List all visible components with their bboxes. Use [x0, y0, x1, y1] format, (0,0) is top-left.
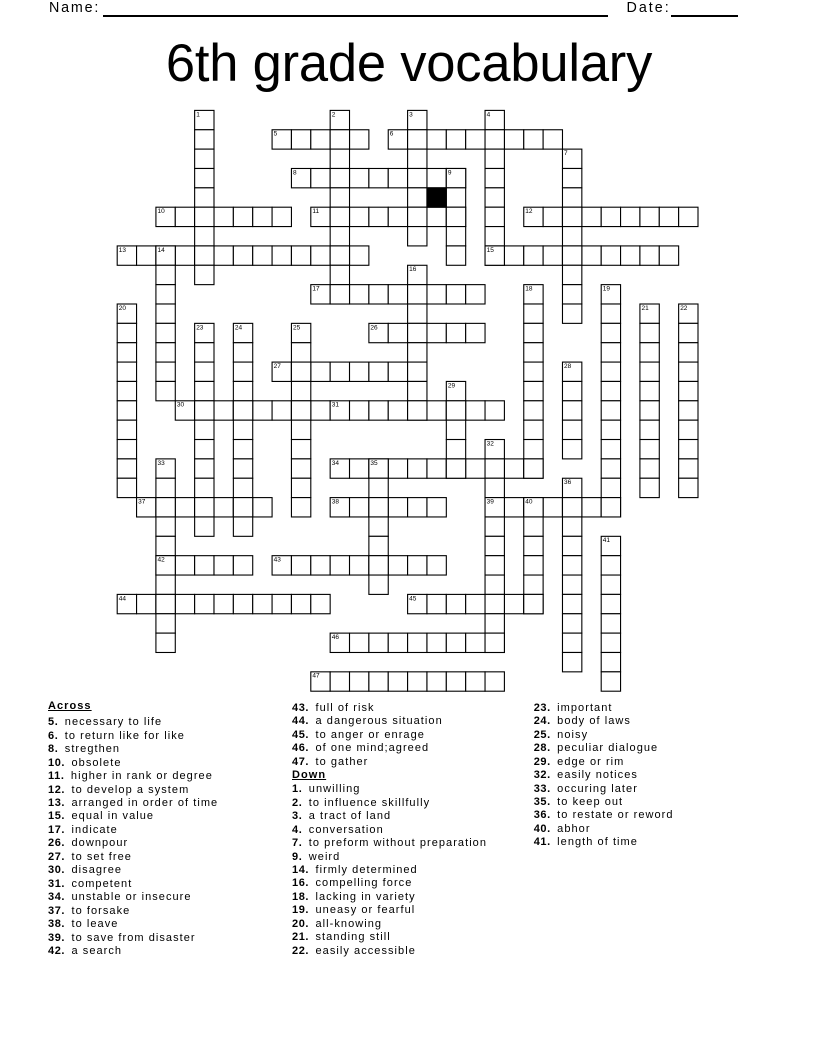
svg-text:45: 45	[409, 595, 417, 602]
svg-text:9: 9	[448, 169, 452, 176]
svg-text:1: 1	[196, 111, 200, 118]
svg-text:39: 39	[487, 499, 495, 506]
svg-text:41: 41	[603, 537, 611, 544]
svg-text:25: 25	[293, 324, 301, 331]
svg-text:7: 7	[564, 150, 568, 157]
svg-text:44: 44	[119, 595, 127, 602]
svg-text:38: 38	[332, 499, 340, 506]
svg-text:23: 23	[196, 324, 204, 331]
svg-text:34: 34	[332, 460, 340, 467]
svg-text:5: 5	[274, 131, 278, 138]
svg-text:10: 10	[157, 208, 165, 215]
svg-text:17: 17	[312, 286, 320, 293]
svg-text:42: 42	[157, 557, 165, 564]
svg-text:2: 2	[332, 111, 336, 118]
svg-text:35: 35	[370, 460, 378, 467]
svg-text:19: 19	[603, 286, 611, 293]
svg-text:14: 14	[157, 247, 165, 254]
svg-text:33: 33	[157, 460, 165, 467]
svg-text:21: 21	[641, 305, 649, 312]
svg-text:4: 4	[487, 111, 491, 118]
svg-text:43: 43	[274, 557, 282, 564]
svg-text:12: 12	[525, 208, 533, 215]
svg-text:8: 8	[293, 169, 297, 176]
svg-text:32: 32	[487, 440, 495, 447]
svg-text:3: 3	[409, 111, 413, 118]
svg-text:31: 31	[332, 402, 340, 409]
svg-text:40: 40	[525, 499, 533, 506]
svg-text:22: 22	[680, 305, 688, 312]
svg-text:24: 24	[235, 324, 243, 331]
svg-text:26: 26	[370, 324, 378, 331]
svg-text:30: 30	[177, 402, 185, 409]
svg-text:46: 46	[332, 634, 340, 641]
svg-text:20: 20	[119, 305, 127, 312]
svg-text:15: 15	[487, 247, 495, 254]
svg-text:27: 27	[274, 363, 282, 370]
svg-text:36: 36	[564, 479, 572, 486]
svg-text:16: 16	[409, 266, 417, 273]
svg-text:11: 11	[312, 208, 319, 215]
svg-text:47: 47	[312, 673, 320, 680]
svg-text:6: 6	[390, 131, 394, 138]
svg-text:29: 29	[448, 382, 456, 389]
svg-text:18: 18	[525, 286, 533, 293]
svg-text:28: 28	[564, 363, 572, 370]
svg-text:37: 37	[138, 499, 146, 506]
svg-text:13: 13	[119, 247, 127, 254]
